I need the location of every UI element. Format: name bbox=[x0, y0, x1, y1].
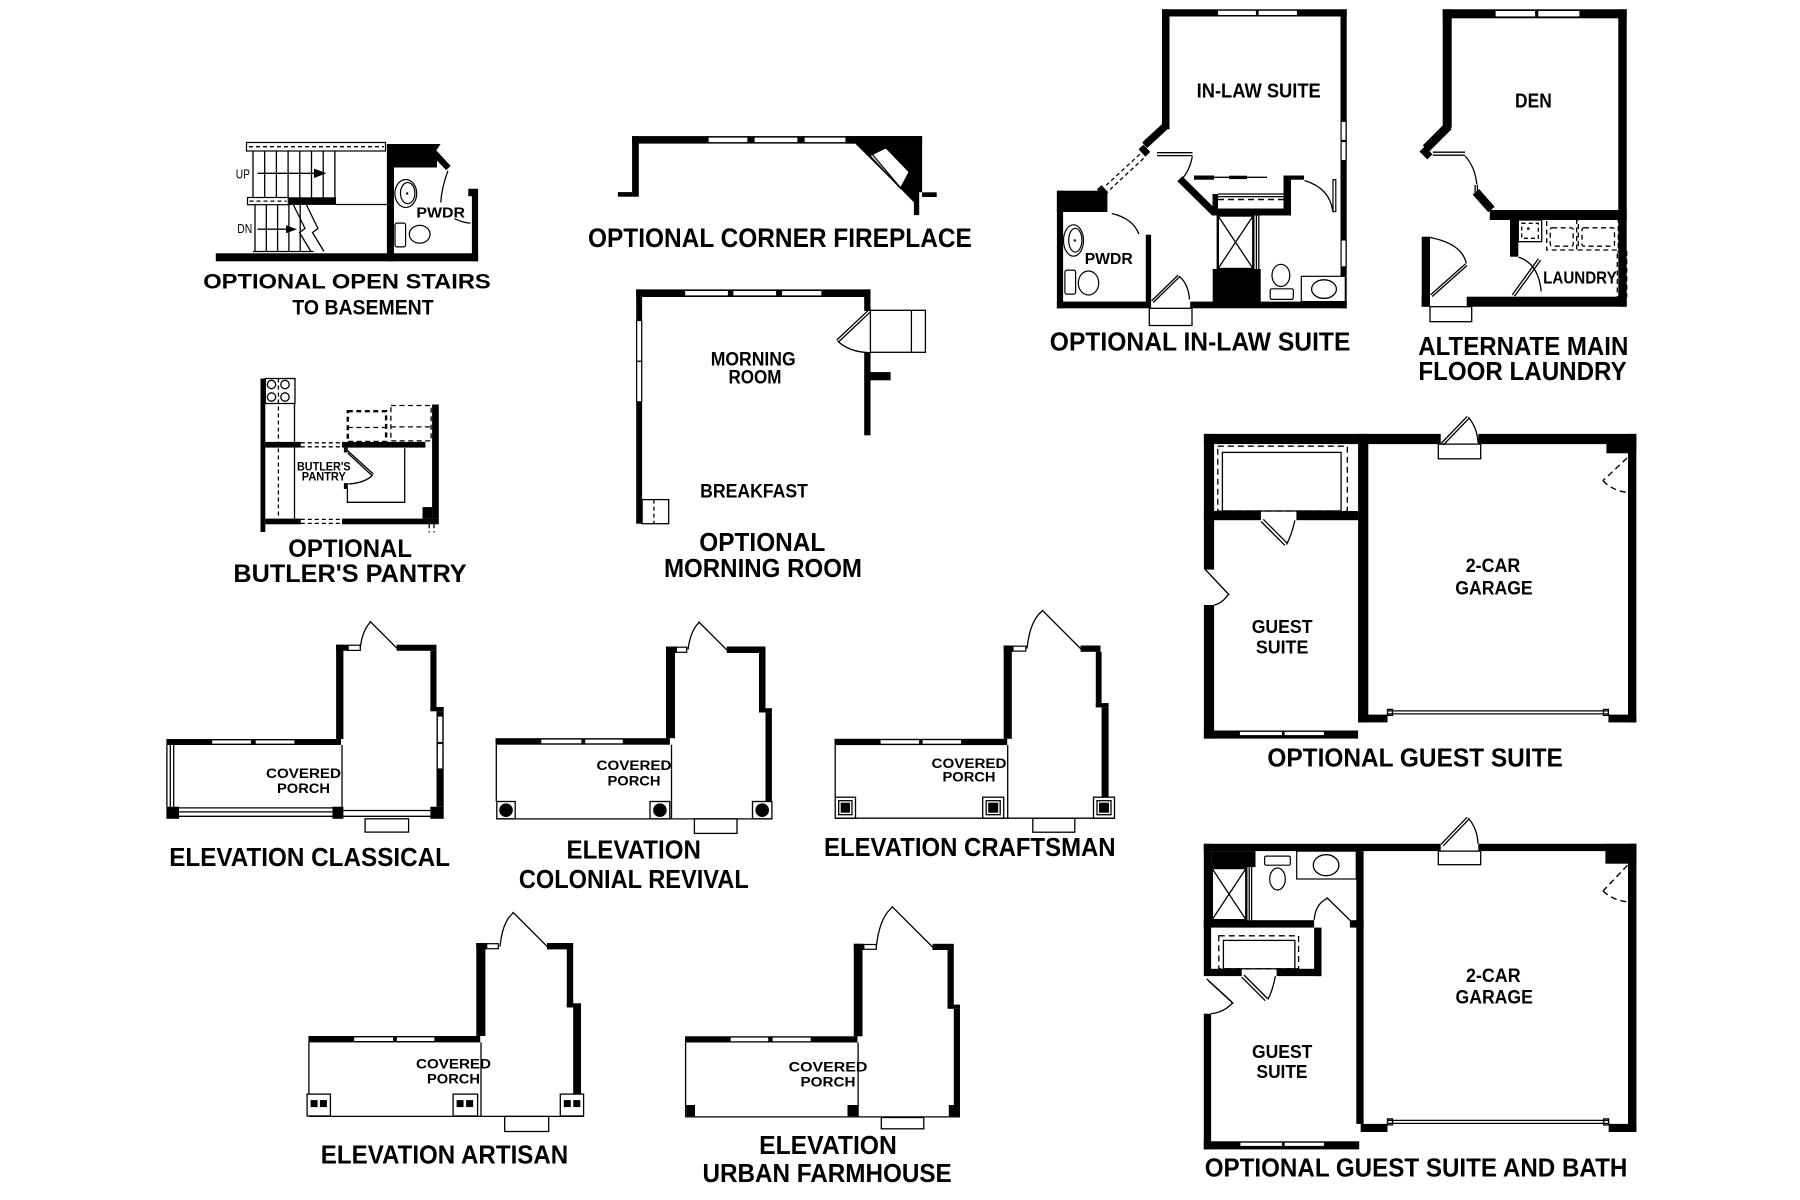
svg-text:PWDR: PWDR bbox=[416, 205, 465, 222]
svg-text:UP: UP bbox=[236, 167, 250, 181]
svg-text:OPTIONAL OPEN STAIRS: OPTIONAL OPEN STAIRS bbox=[203, 268, 491, 293]
svg-text:ELEVATION: ELEVATION bbox=[567, 834, 701, 864]
svg-text:URBAN FARMHOUSE: URBAN FARMHOUSE bbox=[702, 1158, 951, 1188]
svg-text:DN: DN bbox=[237, 222, 252, 236]
svg-text:FLOOR LAUNDRY: FLOOR LAUNDRY bbox=[1418, 356, 1626, 386]
svg-text:COLONIAL REVIVAL: COLONIAL REVIVAL bbox=[519, 864, 749, 894]
svg-text:GARAGE: GARAGE bbox=[1455, 579, 1532, 600]
svg-text:MORNING ROOM: MORNING ROOM bbox=[664, 553, 862, 583]
svg-text:IN-LAW SUITE: IN-LAW SUITE bbox=[1197, 81, 1321, 103]
svg-text:PORCH: PORCH bbox=[608, 774, 661, 789]
svg-text:BREAKFAST: BREAKFAST bbox=[700, 481, 808, 503]
svg-text:2-CAR: 2-CAR bbox=[1466, 556, 1521, 577]
svg-text:OPTIONAL CORNER FIREPLACE: OPTIONAL CORNER FIREPLACE bbox=[588, 223, 972, 253]
svg-text:ELEVATION: ELEVATION bbox=[759, 1130, 897, 1160]
svg-text:SUITE: SUITE bbox=[1256, 637, 1309, 657]
svg-text:BUTLER'S PANTRY: BUTLER'S PANTRY bbox=[233, 560, 467, 588]
svg-text:GARAGE: GARAGE bbox=[1456, 988, 1533, 1009]
svg-text:COVERED: COVERED bbox=[266, 766, 341, 781]
svg-text:OPTIONAL: OPTIONAL bbox=[288, 535, 412, 563]
svg-text:LAUNDRY: LAUNDRY bbox=[1543, 267, 1617, 287]
svg-text:OPTIONAL GUEST SUITE: OPTIONAL GUEST SUITE bbox=[1267, 743, 1562, 773]
svg-text:ELEVATION ARTISAN: ELEVATION ARTISAN bbox=[321, 1139, 568, 1169]
svg-text:DEN: DEN bbox=[1515, 90, 1552, 112]
svg-text:ELEVATION CLASSICAL: ELEVATION CLASSICAL bbox=[169, 842, 450, 872]
svg-text:OPTIONAL IN-LAW SUITE: OPTIONAL IN-LAW SUITE bbox=[1050, 326, 1351, 356]
svg-text:PANTRY: PANTRY bbox=[302, 470, 346, 484]
svg-text:GUEST: GUEST bbox=[1252, 617, 1313, 637]
svg-text:COVERED: COVERED bbox=[416, 1056, 491, 1071]
svg-text:COVERED: COVERED bbox=[789, 1059, 868, 1074]
svg-text:GUEST: GUEST bbox=[1252, 1042, 1312, 1062]
svg-text:TO BASEMENT: TO BASEMENT bbox=[292, 295, 434, 320]
svg-text:COVERED: COVERED bbox=[597, 758, 672, 773]
svg-text:2-CAR: 2-CAR bbox=[1466, 966, 1521, 987]
svg-text:PORCH: PORCH bbox=[801, 1074, 856, 1089]
svg-text:PORCH: PORCH bbox=[943, 770, 996, 785]
svg-text:PWDR: PWDR bbox=[1085, 251, 1133, 268]
svg-text:PORCH: PORCH bbox=[427, 1072, 480, 1087]
svg-text:PORCH: PORCH bbox=[277, 781, 330, 796]
svg-text:OPTIONAL GUEST SUITE AND BATH: OPTIONAL GUEST SUITE AND BATH bbox=[1205, 1152, 1628, 1182]
svg-text:ELEVATION CRAFTSMAN: ELEVATION CRAFTSMAN bbox=[824, 832, 1116, 862]
svg-text:SUITE: SUITE bbox=[1257, 1062, 1308, 1082]
svg-text:ROOM: ROOM bbox=[729, 366, 782, 388]
